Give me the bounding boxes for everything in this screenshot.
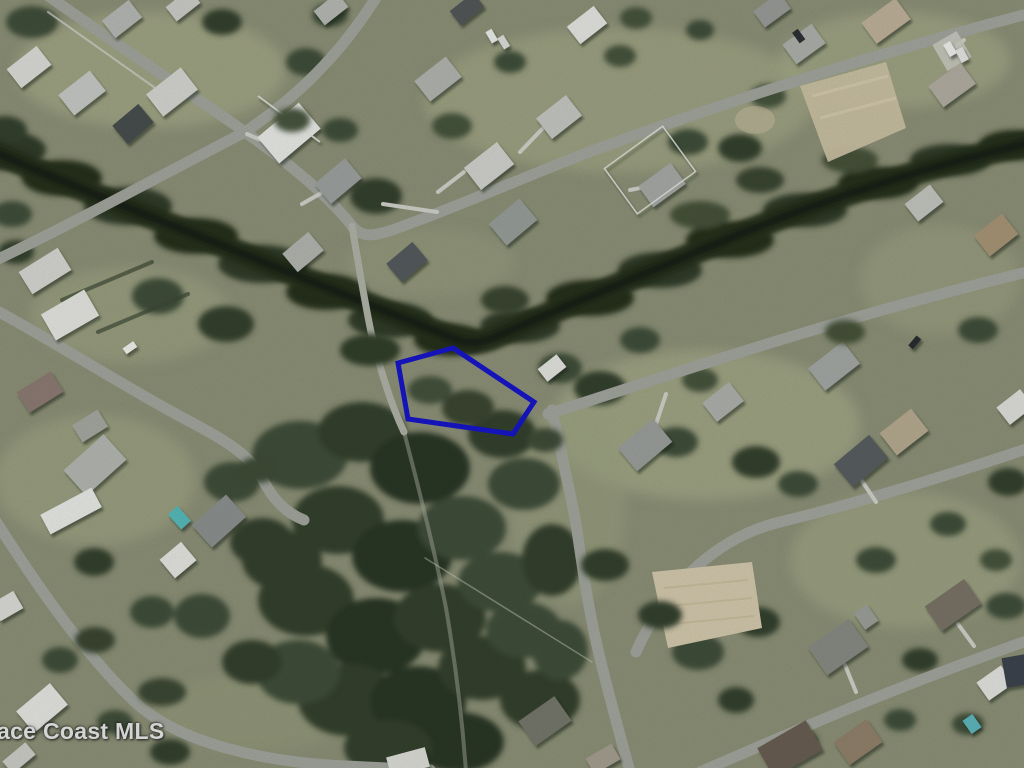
- aerial-photo-canvas: ace Coast MLS: [0, 0, 1024, 768]
- mls-watermark: ace Coast MLS: [0, 719, 165, 744]
- satellite-image: [0, 0, 1024, 768]
- film-grain: [0, 0, 1024, 768]
